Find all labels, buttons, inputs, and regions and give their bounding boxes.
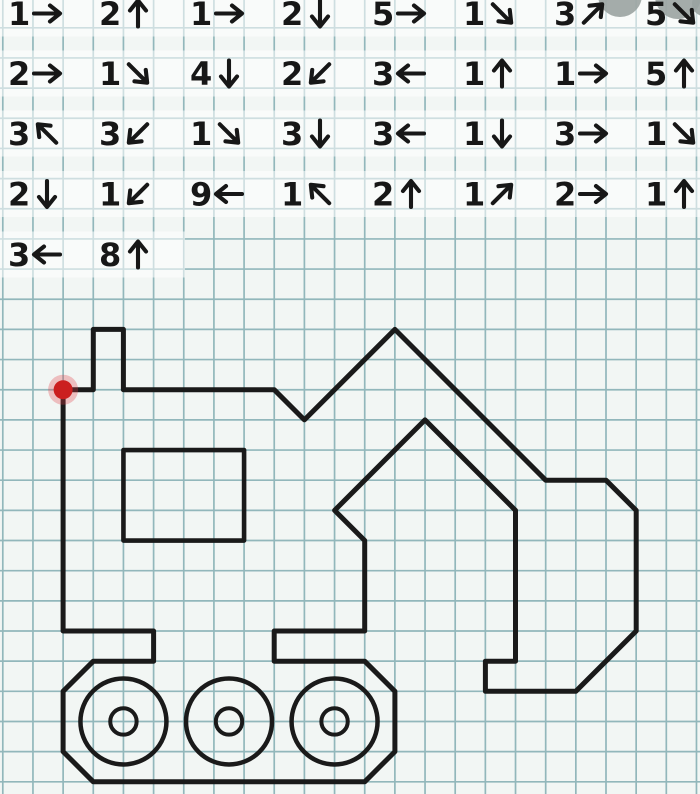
step-count: 1	[281, 176, 303, 214]
worksheet-scene: 1212513521423115331331312191212138	[0, 0, 700, 794]
step-count: 1	[99, 176, 121, 214]
step-count: 1	[8, 0, 30, 33]
step-count: 3	[554, 0, 576, 33]
step-count: 5	[372, 0, 394, 33]
step-count: 1	[645, 115, 667, 153]
step-count: 3	[281, 115, 303, 153]
step-count: 1	[554, 55, 576, 93]
step-count: 4	[190, 55, 212, 93]
step-count: 9	[190, 176, 212, 214]
step-count: 1	[463, 115, 485, 153]
step-count: 3	[8, 236, 30, 274]
step-count: 1	[463, 55, 485, 93]
worksheet-page: 1212513521423115331331312191212138	[0, 0, 700, 794]
step-count: 3	[372, 115, 394, 153]
step-count: 1	[463, 176, 485, 214]
step-count: 2	[372, 176, 394, 214]
step-count: 3	[8, 115, 30, 153]
step-count: 1	[190, 0, 212, 33]
step-count: 1	[99, 55, 121, 93]
step-count: 1	[463, 0, 485, 33]
step-count: 1	[190, 115, 212, 153]
step-count: 2	[281, 0, 303, 33]
step-count: 5	[645, 0, 667, 33]
step-count: 2	[554, 176, 576, 214]
step-count: 8	[99, 236, 121, 274]
step-count: 3	[554, 115, 576, 153]
step-count: 2	[8, 55, 30, 93]
step-count: 3	[372, 55, 394, 93]
step-count: 3	[99, 115, 121, 153]
step-count: 1	[645, 176, 667, 214]
step-count: 2	[8, 176, 30, 214]
step-count: 2	[99, 0, 121, 33]
start-dot	[54, 380, 73, 399]
step-count: 2	[281, 55, 303, 93]
step-count: 5	[645, 55, 667, 93]
